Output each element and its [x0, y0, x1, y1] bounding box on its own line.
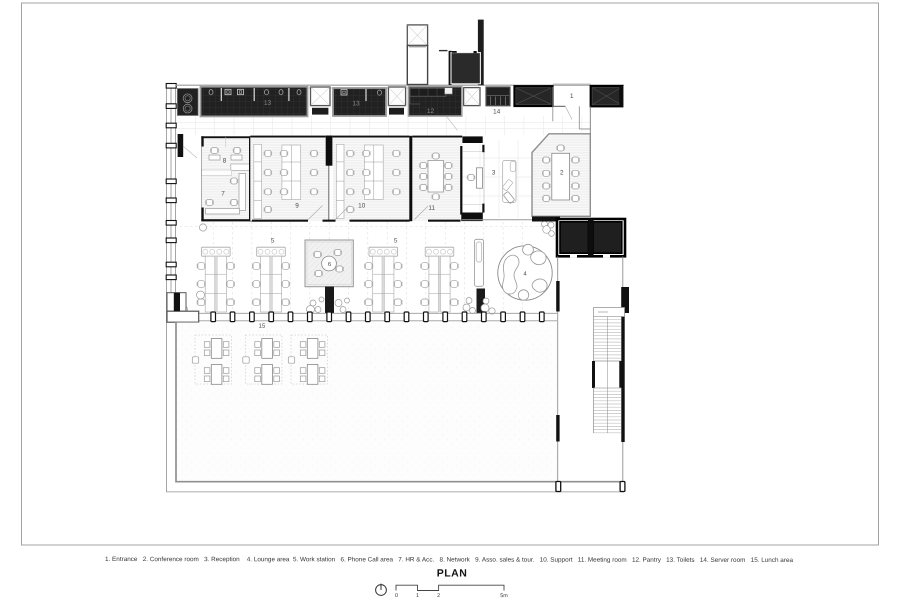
svg-text:11: 11: [428, 205, 435, 212]
svg-text:PLAN: PLAN: [437, 567, 468, 579]
svg-text:9: 9: [295, 202, 299, 209]
svg-text:12: 12: [427, 108, 435, 115]
svg-text:7: 7: [221, 190, 225, 197]
svg-text:2: 2: [560, 169, 564, 176]
svg-text:13: 13: [352, 100, 360, 107]
svg-text:0: 0: [395, 593, 398, 599]
svg-text:15: 15: [259, 324, 266, 330]
svg-text:1: 1: [416, 593, 419, 599]
svg-text:5: 5: [271, 237, 275, 244]
svg-text:13: 13: [264, 100, 272, 107]
svg-text:1. Entrance 2. Conference ro: 1. Entrance 2. Conference room 3. Recept…: [105, 556, 794, 564]
svg-text:5m: 5m: [500, 593, 508, 599]
svg-text:5: 5: [394, 237, 398, 244]
svg-text:14: 14: [493, 108, 501, 115]
svg-text:3: 3: [492, 169, 496, 176]
svg-text:1: 1: [570, 93, 574, 100]
svg-text:8: 8: [223, 157, 227, 164]
svg-text:2: 2: [437, 593, 440, 599]
svg-text:10: 10: [358, 202, 366, 209]
